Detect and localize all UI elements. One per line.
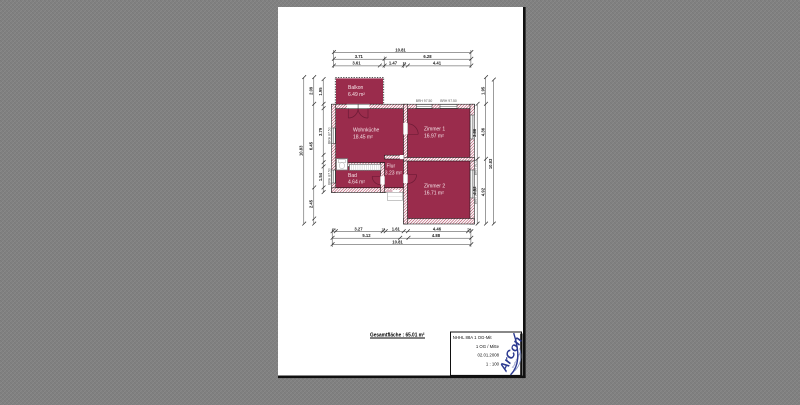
svg-text:5.12: 5.12 [362,233,371,238]
svg-text:1.61: 1.61 [392,226,401,231]
svg-text:4.52: 4.52 [472,186,477,195]
svg-text:6.45: 6.45 [309,141,314,150]
svg-text:Flur: Flur [387,164,396,170]
svg-text:24: 24 [382,227,386,231]
svg-text:1.47: 1.47 [389,61,398,66]
svg-text:3.71: 3.71 [355,54,364,59]
svg-text:Zimmer 1: Zimmer 1 [424,127,445,133]
svg-text:10.81: 10.81 [395,47,406,52]
svg-text:4.46: 4.46 [433,226,442,231]
svg-text:24: 24 [467,227,471,231]
svg-text:16.97 m²: 16.97 m² [424,134,444,140]
svg-text:2.09: 2.09 [309,86,314,95]
svg-text:BRH 97.50: BRH 97.50 [416,99,433,103]
svg-text:6.49 m²: 6.49 m² [348,92,365,98]
svg-text:4.88: 4.88 [432,233,441,238]
svg-text:10.81: 10.81 [392,239,403,244]
svg-text:Balkon: Balkon [348,85,364,91]
svg-text:1 OG / Mitte: 1 OG / Mitte [476,344,500,349]
svg-text:10.83: 10.83 [488,158,493,169]
svg-text:BRH 87.50: BRH 87.50 [327,127,331,144]
svg-text:24: 24 [403,62,407,66]
svg-text:Bad: Bad [348,173,357,179]
svg-text:1.95: 1.95 [480,86,485,95]
svg-text:16.71 m²: 16.71 m² [424,191,444,197]
svg-text:18.45 m²: 18.45 m² [353,135,373,141]
svg-text:3.61: 3.61 [352,61,361,66]
svg-text:NHHL 88A 1 OG-Mit: NHHL 88A 1 OG-Mit [453,335,493,340]
svg-text:1.54: 1.54 [318,172,323,181]
svg-text:4.92: 4.92 [480,187,485,196]
svg-text:BRH 97.50: BRH 97.50 [440,99,457,103]
svg-text:3.79: 3.79 [318,127,323,136]
svg-text:6.28: 6.28 [423,54,432,59]
svg-text:4.36: 4.36 [480,127,485,136]
svg-text:3.23 m²: 3.23 m² [385,171,402,177]
svg-text:1.95: 1.95 [318,87,323,96]
svg-text:Zimmer 2: Zimmer 2 [424,184,445,190]
svg-text:Wohnküche: Wohnküche [353,128,380,134]
svg-text:3.27: 3.27 [354,226,363,231]
svg-text:02.01.2008: 02.01.2008 [477,353,499,358]
svg-text:4.41: 4.41 [433,61,442,66]
svg-text:10.83: 10.83 [299,145,304,156]
svg-text:BRH 87.50: BRH 87.50 [327,168,331,185]
svg-text:24: 24 [332,227,336,231]
svg-text:3.86: 3.86 [472,128,477,137]
svg-text:4.64 m²: 4.64 m² [348,180,365,186]
svg-text:2.45: 2.45 [309,199,314,208]
